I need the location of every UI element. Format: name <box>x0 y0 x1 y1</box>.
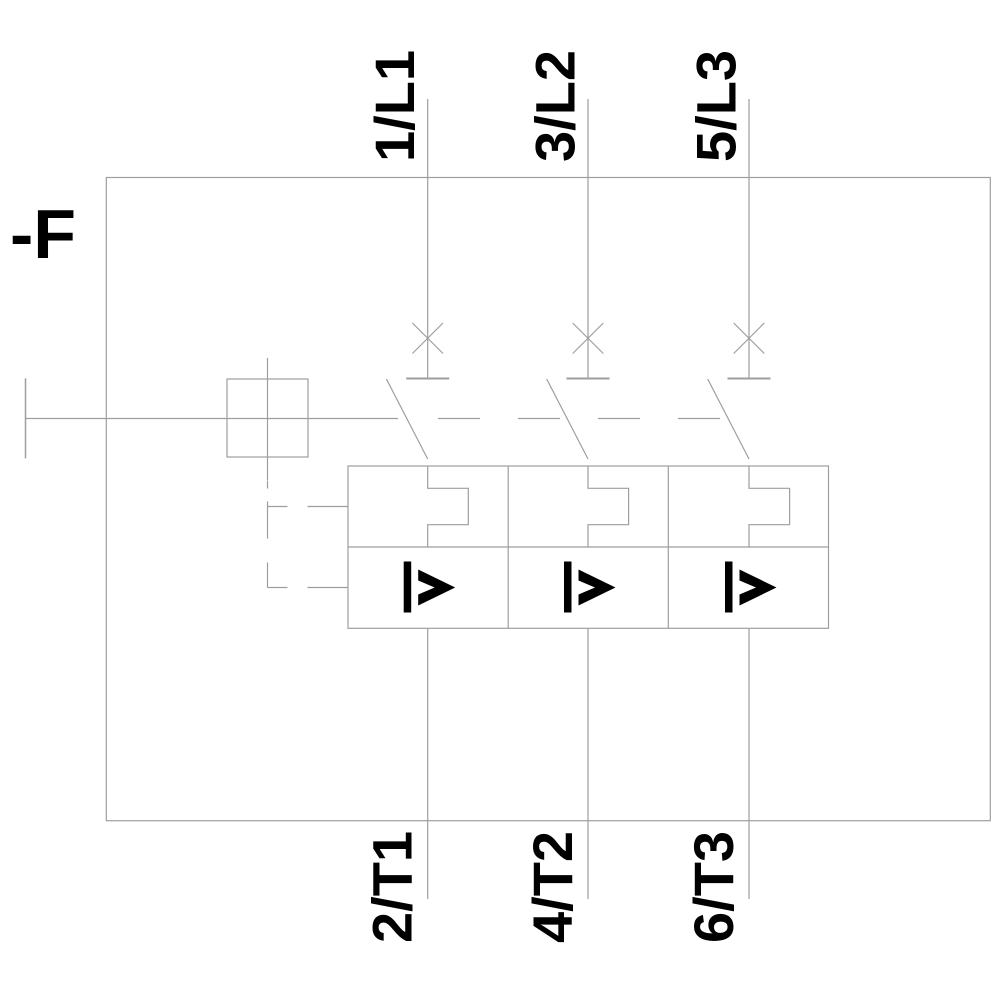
schematic-page: -F 1/L1 <box>0 0 1000 1000</box>
pole-1: 1/L1 2/T1 <box>361 50 469 943</box>
overcurrent-release-icon-3 <box>725 562 777 613</box>
enclosure-border <box>106 178 990 821</box>
dashed-linkage-icon <box>268 481 349 588</box>
device-designator-label: -F <box>10 195 76 273</box>
pole-2: 3/L2 4/T2 <box>521 50 629 943</box>
circuit-diagram-canvas: -F 1/L1 <box>0 0 1000 1000</box>
terminal-label-bottom-3: 6/T3 <box>682 831 745 943</box>
overcurrent-release-icon-2 <box>564 562 616 613</box>
pole-3: 5/L3 6/T3 <box>682 50 790 943</box>
terminal-label-top-3: 5/L3 <box>685 50 748 162</box>
terminal-label-top-1: 1/L1 <box>363 50 426 162</box>
thermal-overload-notch-icon-3 <box>749 466 790 547</box>
overcurrent-release-icon-1 <box>404 562 456 613</box>
terminal-label-bottom-1: 2/T1 <box>361 831 424 943</box>
operating-mechanism <box>26 358 721 588</box>
thermal-overload-notch-icon-1 <box>428 466 469 547</box>
thermal-overload-notch-icon-2 <box>588 466 629 547</box>
terminal-label-top-2: 3/L2 <box>524 50 587 162</box>
terminal-label-bottom-2: 4/T2 <box>521 831 584 943</box>
